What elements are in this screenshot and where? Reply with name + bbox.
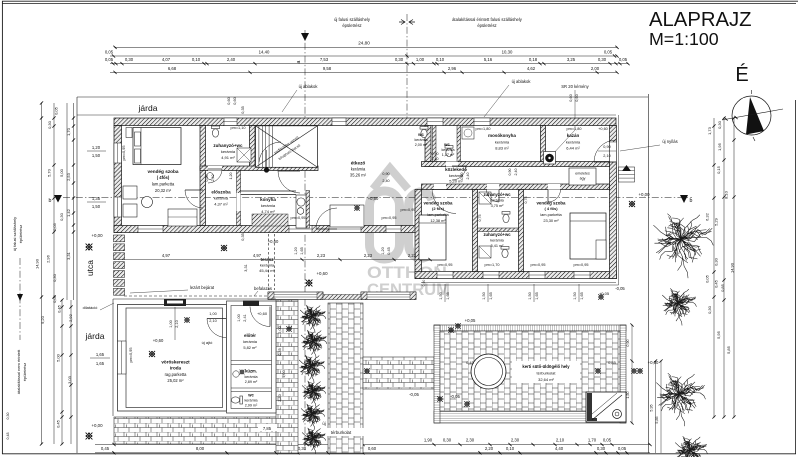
- svg-text:új falusi szálláshely: új falusi szálláshely: [334, 17, 371, 22]
- svg-text:kerámia: kerámia: [243, 339, 258, 344]
- svg-text:új ablakok: új ablakok: [299, 84, 319, 89]
- svg-text:kerámia: kerámia: [495, 140, 510, 145]
- svg-text:kerámia: kerámia: [490, 239, 504, 243]
- svg-text:1,17 m²: 1,17 m²: [442, 153, 455, 157]
- svg-text:2,41: 2,41: [243, 314, 247, 321]
- svg-text:zuhanyzó+wc: zuhanyzó+wc: [483, 232, 511, 237]
- svg-text:kerámia: kerámia: [244, 399, 258, 403]
- svg-text:ágy: ágy: [580, 177, 586, 181]
- svg-text:0,45: 0,45: [56, 419, 61, 428]
- svg-text:3,75 m²: 3,75 m²: [491, 204, 505, 208]
- svg-text:épületrész: épületrész: [18, 225, 23, 243]
- svg-text:5,70: 5,70: [47, 168, 52, 177]
- svg-text:14,90: 14,90: [35, 258, 40, 269]
- svg-text:1,65: 1,65: [300, 247, 304, 254]
- svg-text:emeletes: emeletes: [575, 172, 590, 176]
- svg-text:0,30: 0,30: [717, 120, 722, 129]
- svg-text:24,80: 24,80: [358, 40, 370, 45]
- svg-text:( 4 fős): ( 4 fős): [544, 206, 558, 211]
- svg-text:pm=1,80: pm=1,80: [567, 127, 582, 131]
- svg-text:10,30: 10,30: [502, 49, 513, 54]
- svg-text:1,50: 1,50: [92, 153, 101, 158]
- svg-text:kerámia: kerámia: [441, 148, 455, 152]
- svg-text:vendég szoba: vendég szoba: [423, 201, 453, 206]
- svg-text:ALAPRAJZ: ALAPRAJZ: [649, 9, 752, 31]
- svg-text:(2 fős): (2 fős): [432, 206, 445, 211]
- svg-text:1,20: 1,20: [381, 247, 385, 254]
- svg-text:wc: wc: [417, 132, 424, 137]
- svg-text:lezárt bejárat: lezárt bejárat: [190, 285, 215, 290]
- svg-text:0,60: 0,60: [569, 94, 573, 101]
- svg-text:5,16: 5,16: [484, 57, 493, 62]
- svg-text:2,53: 2,53: [66, 172, 71, 181]
- svg-text:4,74 m²: 4,74 m²: [261, 209, 275, 214]
- svg-text:1,20: 1,20: [229, 173, 233, 180]
- svg-text:35,26 m²: 35,26 m²: [350, 173, 367, 178]
- svg-text:közlekedő: közlekedő: [445, 167, 467, 172]
- svg-text:pm=0,95: pm=0,95: [382, 216, 397, 220]
- svg-text:vöröskereszt: vöröskereszt: [161, 360, 190, 365]
- svg-text:1,00: 1,00: [209, 312, 216, 316]
- svg-text:0,60: 0,60: [227, 97, 231, 104]
- svg-text:2,40: 2,40: [211, 175, 215, 182]
- svg-text:előszoba: előszoba: [211, 190, 231, 195]
- svg-text:4,62: 4,62: [527, 66, 536, 71]
- svg-text:átalakítással érintett falusi: átalakítással érintett falusi szálláshel…: [452, 17, 523, 22]
- svg-text:0,90: 0,90: [432, 152, 439, 156]
- svg-text:1,42: 1,42: [66, 208, 71, 217]
- svg-text:8,83 m²: 8,83 m²: [495, 146, 509, 151]
- svg-text:0,05: 0,05: [604, 49, 613, 54]
- svg-text:2,89 m²: 2,89 m²: [245, 380, 258, 384]
- svg-text:épületrész: épületrész: [477, 23, 496, 28]
- svg-text:kerámia: kerámia: [490, 199, 504, 203]
- svg-text:kerámia: kerámia: [261, 203, 276, 208]
- svg-text:zuhanyzó+wc: zuhanyzó+wc: [483, 192, 511, 197]
- svg-text:pm=0,95: pm=0,95: [129, 348, 133, 363]
- svg-text:4,07: 4,07: [162, 57, 171, 62]
- svg-text:konyha: konyha: [260, 197, 276, 202]
- svg-text:5,85: 5,85: [655, 416, 659, 423]
- svg-text:kerámia: kerámia: [244, 375, 258, 379]
- svg-text:wc: wc: [247, 393, 254, 398]
- svg-text:1,95: 1,95: [717, 142, 722, 151]
- svg-text:1,65: 1,65: [535, 292, 539, 299]
- svg-text:átalakítással nem érintett: átalakítással nem érintett: [16, 349, 21, 394]
- svg-text:2,20: 2,20: [485, 446, 494, 451]
- svg-text:0,60: 0,60: [233, 97, 237, 104]
- svg-text:1,50: 1,50: [528, 292, 532, 299]
- svg-text:kerámia: kerámia: [214, 196, 229, 201]
- svg-text:2,00 m²: 2,00 m²: [415, 143, 428, 147]
- svg-text:küzm.: küzm.: [245, 369, 257, 374]
- svg-text:0,10: 0,10: [192, 57, 201, 62]
- svg-text:0,10: 0,10: [436, 57, 445, 62]
- svg-text:előtér: előtér: [244, 333, 256, 338]
- svg-text:térburkolat: térburkolat: [331, 430, 352, 435]
- svg-text:0,90: 0,90: [205, 175, 209, 182]
- svg-text:kerámia: kerámia: [414, 138, 428, 142]
- svg-text:2,23: 2,23: [408, 253, 417, 258]
- svg-text:É: É: [735, 63, 748, 86]
- svg-text:3,31: 3,31: [244, 264, 248, 271]
- svg-text:0,75: 0,75: [524, 197, 528, 204]
- svg-text:0,30: 0,30: [52, 273, 57, 282]
- svg-text:1,50: 1,50: [573, 292, 577, 299]
- svg-text:befalazás: befalazás: [254, 286, 272, 291]
- svg-text:14,40: 14,40: [259, 49, 270, 54]
- svg-text:0,35: 0,35: [241, 233, 245, 240]
- svg-text:2,10: 2,10: [603, 154, 610, 158]
- svg-text:8,00: 8,00: [196, 446, 205, 451]
- svg-text:1,50: 1,50: [439, 292, 443, 299]
- svg-text:b: b: [690, 198, 693, 204]
- svg-text:pm=1,10: pm=1,10: [231, 126, 246, 130]
- svg-text:4,37 m²: 4,37 m²: [214, 202, 228, 207]
- svg-text:0,30: 0,30: [597, 446, 606, 451]
- svg-text:0,05: 0,05: [54, 106, 59, 115]
- svg-text:vendég szoba: vendég szoba: [536, 201, 566, 206]
- svg-text:kerámia: kerámia: [351, 167, 366, 172]
- svg-text:9,20: 9,20: [40, 315, 45, 324]
- svg-text:étkező: étkező: [351, 161, 366, 166]
- svg-text:2,30: 2,30: [511, 438, 520, 443]
- svg-text:1,65: 1,65: [580, 292, 584, 299]
- svg-text:iroda: iroda: [170, 366, 182, 371]
- svg-text:45,44 m²: 45,44 m²: [259, 268, 275, 273]
- svg-text:0,30: 0,30: [598, 57, 607, 62]
- svg-text:0,30: 0,30: [59, 212, 64, 221]
- svg-text:zuhanyzó+wc: zuhanyzó+wc: [213, 143, 243, 148]
- svg-text:4,97: 4,97: [253, 253, 262, 258]
- svg-text:dilatáció: dilatáció: [83, 305, 98, 310]
- svg-text:+0,00: +0,00: [648, 360, 659, 365]
- svg-text:1,00: 1,00: [416, 57, 425, 62]
- svg-text:2,10: 2,10: [209, 319, 216, 323]
- svg-text:0,90: 0,90: [460, 173, 464, 180]
- svg-text:5,29: 5,29: [714, 217, 719, 226]
- svg-text:4,91 m²: 4,91 m²: [221, 155, 235, 160]
- svg-text:1,50: 1,50: [482, 292, 486, 299]
- svg-text:pm=1,70: pm=1,70: [485, 263, 500, 267]
- svg-text:0,05: 0,05: [618, 446, 627, 451]
- svg-text:0,45: 0,45: [387, 247, 391, 254]
- svg-text:rag.parketta: rag.parketta: [165, 372, 188, 377]
- svg-text:0,18: 0,18: [529, 57, 538, 62]
- svg-text:( 4fős): ( 4fős): [157, 175, 170, 180]
- svg-text:4,40: 4,40: [555, 446, 564, 451]
- svg-text:1,00: 1,00: [237, 314, 241, 321]
- svg-text:kazán: kazán: [567, 133, 580, 138]
- svg-text:0,05: 0,05: [52, 294, 57, 303]
- svg-text:23,30 m²: 23,30 m²: [543, 218, 559, 223]
- svg-text:1,35: 1,35: [92, 196, 101, 201]
- svg-text:1,50: 1,50: [92, 204, 101, 209]
- svg-text:25,02 m²: 25,02 m²: [167, 378, 184, 383]
- svg-text:0,90: 0,90: [508, 169, 512, 176]
- svg-text:új ajtó: új ajtó: [202, 340, 213, 345]
- svg-text:+0,60: +0,60: [257, 311, 268, 316]
- svg-text:0,90: 0,90: [603, 145, 610, 149]
- svg-text:+0,00: +0,00: [91, 423, 103, 428]
- svg-text:0,30: 0,30: [125, 57, 134, 62]
- svg-text:új falusi szálláshely: új falusi szálláshely: [12, 217, 17, 251]
- svg-text:pm=1,80: pm=1,80: [476, 127, 491, 131]
- svg-text:térburkolat: térburkolat: [537, 371, 557, 376]
- svg-text:2,40: 2,40: [432, 157, 439, 161]
- svg-text:2,10: 2,10: [556, 438, 565, 443]
- svg-text:+0,00: +0,00: [91, 233, 103, 238]
- svg-text:kerámia: kerámia: [566, 140, 581, 145]
- svg-text:0,05: 0,05: [52, 222, 57, 231]
- svg-text:8,10: 8,10: [724, 190, 729, 199]
- svg-text:+0,60: +0,60: [598, 127, 608, 131]
- svg-text:kerti sütő-üldögélő hely: kerti sütő-üldögélő hely: [522, 364, 570, 369]
- svg-text:4,97: 4,97: [162, 253, 171, 258]
- svg-text:+0,60: +0,60: [368, 196, 379, 201]
- svg-text:lam.parketta: lam.parketta: [540, 212, 562, 217]
- svg-text:kerámia: kerámia: [260, 263, 275, 268]
- svg-text:új ablakok: új ablakok: [512, 79, 532, 84]
- svg-text:pm=0,95: pm=0,95: [122, 146, 126, 161]
- svg-text:-0,05: -0,05: [409, 392, 419, 397]
- svg-text:2,00: 2,00: [591, 66, 600, 71]
- svg-text:5,00: 5,00: [59, 168, 64, 177]
- svg-text:5,41 m²: 5,41 m²: [491, 244, 505, 248]
- svg-text:20,32 m²: 20,32 m²: [155, 188, 172, 193]
- svg-text:6,68: 6,68: [168, 66, 177, 71]
- svg-text:1,65: 1,65: [446, 292, 450, 299]
- svg-text:2,40: 2,40: [466, 173, 470, 180]
- svg-text:mosókonyha: mosókonyha: [488, 133, 516, 138]
- svg-text:0,75: 0,75: [478, 215, 482, 222]
- svg-text:+0,05: +0,05: [465, 318, 476, 323]
- svg-text:0,45: 0,45: [466, 360, 475, 365]
- svg-text:2,23: 2,23: [317, 253, 326, 258]
- svg-text:1,00: 1,00: [169, 320, 173, 327]
- svg-text:3,03: 3,03: [67, 375, 72, 384]
- svg-text:0,45: 0,45: [57, 304, 62, 313]
- svg-text:0,90: 0,90: [382, 172, 389, 176]
- svg-text:5,82 m²: 5,82 m²: [243, 345, 257, 350]
- svg-text:7,85: 7,85: [263, 426, 272, 431]
- svg-text:0,85: 0,85: [608, 360, 617, 365]
- svg-text:vendég szoba: vendég szoba: [148, 169, 179, 174]
- svg-text:1,20: 1,20: [294, 247, 298, 254]
- svg-text:1,50: 1,50: [626, 391, 630, 398]
- svg-text:a: a: [296, 60, 302, 63]
- svg-text:utca: utca: [85, 260, 95, 276]
- svg-text:0,45: 0,45: [714, 279, 719, 288]
- svg-text:0,05: 0,05: [705, 274, 710, 283]
- svg-text:0,45: 0,45: [278, 348, 282, 355]
- svg-text:+0,60: +0,60: [153, 338, 164, 343]
- svg-text:lam.parketta: lam.parketta: [152, 182, 175, 187]
- svg-text:járda: járda: [138, 103, 158, 113]
- svg-text:-0,05: -0,05: [450, 394, 460, 399]
- svg-text:új: új: [322, 421, 325, 426]
- svg-text:5,00: 5,00: [56, 353, 61, 362]
- svg-text:0,60: 0,60: [368, 446, 377, 451]
- svg-text:3,31: 3,31: [66, 251, 71, 260]
- svg-text:pm=0,95: pm=0,95: [291, 216, 306, 220]
- svg-text:0,15: 0,15: [716, 165, 721, 174]
- svg-text:2,00: 2,00: [278, 326, 282, 333]
- svg-text:+0,60: +0,60: [268, 239, 279, 244]
- svg-text:0,05: 0,05: [105, 49, 114, 54]
- svg-text:0,60: 0,60: [575, 94, 579, 101]
- svg-text:2,40: 2,40: [382, 179, 389, 183]
- svg-text:járda: járda: [85, 331, 105, 341]
- svg-text:2,92: 2,92: [68, 313, 73, 322]
- svg-text:0,10: 0,10: [506, 446, 515, 451]
- svg-text:6,32: 6,32: [705, 212, 710, 221]
- svg-text:1,73: 1,73: [707, 126, 712, 135]
- svg-text:0,90: 0,90: [422, 280, 426, 287]
- svg-text:2,96: 2,96: [448, 66, 457, 71]
- svg-text:1,70: 1,70: [66, 127, 71, 136]
- svg-text:0,30: 0,30: [6, 413, 10, 420]
- svg-text:lam.parketta: lam.parketta: [427, 212, 449, 217]
- svg-text:5,95: 5,95: [650, 404, 654, 411]
- svg-text:0,30: 0,30: [707, 305, 712, 314]
- svg-text:1,65: 1,65: [489, 292, 493, 299]
- svg-text:0,35: 0,35: [241, 106, 245, 113]
- svg-text:2,10: 2,10: [175, 320, 179, 327]
- svg-text:pm=0,95: pm=0,95: [574, 263, 589, 267]
- svg-text:2,40: 2,40: [227, 57, 236, 62]
- svg-text:0,05: 0,05: [603, 438, 612, 443]
- svg-text:0,85: 0,85: [720, 283, 725, 292]
- svg-text:1,65: 1,65: [96, 361, 105, 366]
- svg-text:2,30: 2,30: [466, 438, 475, 443]
- svg-text:1,65: 1,65: [96, 352, 105, 357]
- svg-text:SR 20 kémény: SR 20 kémény: [561, 84, 589, 89]
- svg-text:0,30: 0,30: [714, 257, 719, 266]
- svg-text:1,90: 1,90: [424, 438, 433, 443]
- svg-text:0,30: 0,30: [395, 57, 404, 62]
- svg-text:12,38 m²: 12,38 m²: [430, 218, 446, 223]
- svg-text:0,30: 0,30: [298, 446, 307, 451]
- svg-text:0,30: 0,30: [443, 438, 452, 443]
- svg-text:wc: wc: [443, 142, 450, 147]
- svg-text:5,85: 5,85: [726, 345, 731, 354]
- svg-text:2,23: 2,23: [364, 253, 373, 258]
- svg-text:-0,05: -0,05: [615, 286, 625, 291]
- svg-text:9,58: 9,58: [323, 66, 332, 71]
- svg-text:2,99 m²: 2,99 m²: [245, 404, 258, 408]
- svg-text:0,48: 0,48: [6, 433, 10, 440]
- svg-text:3,25: 3,25: [567, 57, 576, 62]
- svg-text:pm=0,95: pm=0,95: [401, 208, 416, 212]
- svg-text:32,64 m²: 32,64 m²: [538, 377, 554, 382]
- svg-text:5,95: 5,95: [716, 330, 721, 339]
- svg-text:0,05: 0,05: [619, 57, 628, 62]
- svg-text:1,70: 1,70: [588, 438, 597, 443]
- svg-text:pm=0,95: pm=0,95: [438, 263, 453, 267]
- svg-text:+0,00: +0,00: [638, 192, 650, 197]
- svg-text:pm=0,95: pm=0,95: [531, 263, 546, 267]
- svg-text:2,40: 2,40: [514, 169, 518, 176]
- svg-text:1,00: 1,00: [282, 370, 286, 377]
- svg-text:0,45: 0,45: [101, 446, 110, 451]
- svg-text:+0,60: +0,60: [316, 271, 328, 276]
- svg-text:6,44 m²: 6,44 m²: [566, 146, 580, 151]
- svg-text:1,20: 1,20: [92, 145, 101, 150]
- svg-text:2,96: 2,96: [46, 254, 51, 263]
- svg-text:7,53: 7,53: [320, 57, 329, 62]
- svg-text:épületrész: épületrész: [22, 363, 27, 381]
- svg-text:0,90: 0,90: [626, 339, 630, 346]
- svg-text:M=1:100: M=1:100: [649, 29, 719, 49]
- svg-text:14,90: 14,90: [730, 262, 735, 273]
- svg-text:új nyílás: új nyílás: [662, 139, 677, 144]
- svg-text:0,05: 0,05: [105, 57, 114, 62]
- svg-text:épületrész: épületrész: [342, 23, 361, 28]
- svg-text:kerámia: kerámia: [221, 149, 236, 154]
- svg-text:b: b: [49, 198, 52, 204]
- svg-text:0,30: 0,30: [47, 120, 52, 129]
- svg-text:2,40: 2,40: [278, 394, 282, 401]
